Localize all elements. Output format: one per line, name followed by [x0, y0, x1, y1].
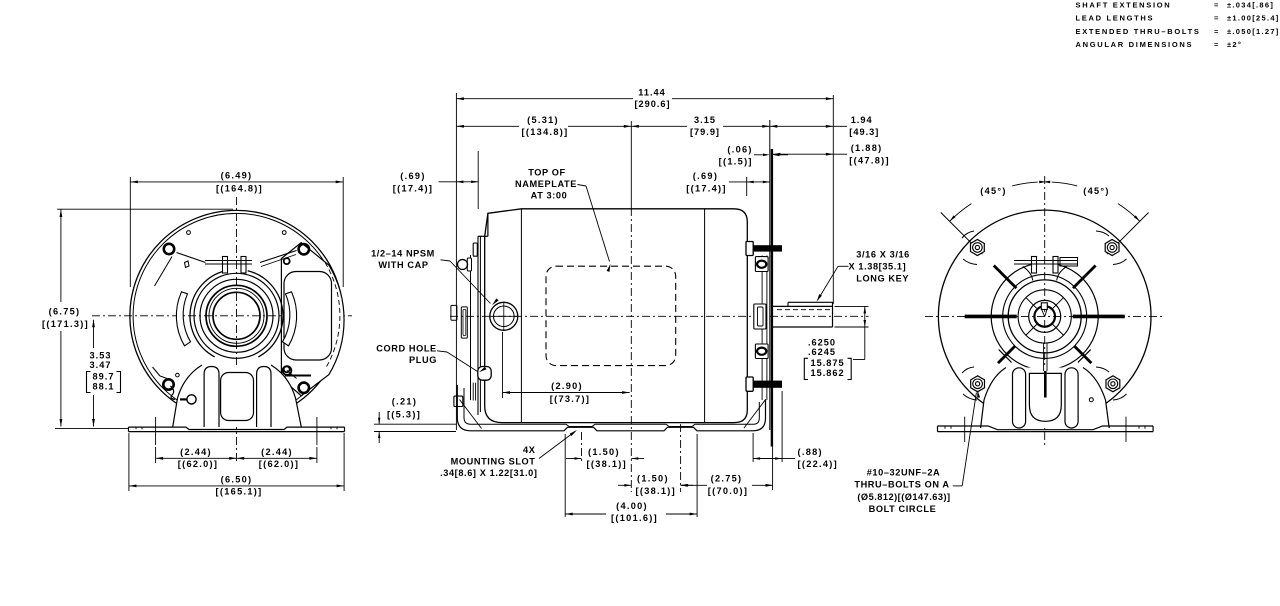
svg-text:[(62.0)]: [(62.0)] — [178, 459, 219, 469]
svg-text:(5.31): (5.31) — [527, 115, 559, 125]
svg-text:[79.9]: [79.9] — [690, 127, 720, 137]
svg-text:3.15: 3.15 — [694, 115, 716, 125]
svg-text:THRU–BOLTS ON A: THRU–BOLTS ON A — [854, 480, 949, 490]
svg-text:(6.75): (6.75) — [49, 307, 81, 317]
svg-text:.34[8.6] X 1.22[31.0]: .34[8.6] X 1.22[31.0] — [440, 468, 537, 478]
svg-text:[(1.5)]: [(1.5)] — [719, 156, 753, 166]
svg-text:(45°): (45°) — [980, 186, 1007, 196]
svg-text:(1.50): (1.50) — [588, 447, 620, 457]
svg-text:.6245: .6245 — [808, 347, 836, 357]
svg-text:X 1.38[35.1]: X 1.38[35.1] — [849, 262, 907, 272]
svg-text:(6.49): (6.49) — [221, 171, 253, 181]
svg-text:3.47: 3.47 — [90, 360, 112, 370]
svg-text:LEAD LENGTHS: LEAD LENGTHS — [1076, 14, 1155, 23]
svg-text:3.53: 3.53 — [90, 351, 112, 361]
svg-text:11.44: 11.44 — [638, 87, 665, 97]
svg-text:89.7: 89.7 — [93, 372, 115, 382]
svg-text:(1.50): (1.50) — [637, 474, 669, 484]
svg-text:(6.50): (6.50) — [221, 474, 253, 484]
svg-text:(.69): (.69) — [693, 171, 718, 181]
svg-text:(2.90): (2.90) — [551, 381, 583, 391]
svg-text:[(17.4)]: [(17.4)] — [686, 183, 727, 193]
svg-text:3/16 X 3/16: 3/16 X 3/16 — [856, 250, 910, 260]
svg-text:[(165.1)]: [(165.1)] — [216, 486, 263, 496]
svg-text:NAMEPLATE: NAMEPLATE — [515, 179, 577, 189]
svg-text:=: = — [1214, 40, 1220, 49]
svg-text:1.94: 1.94 — [851, 115, 873, 125]
svg-text:AT 3:00: AT 3:00 — [531, 191, 568, 201]
svg-text:(.69): (.69) — [400, 171, 425, 181]
svg-text:(.21): (.21) — [392, 397, 417, 407]
svg-text:CORD HOLE: CORD HOLE — [376, 343, 437, 353]
svg-text:[(38.1)]: [(38.1)] — [636, 486, 677, 496]
svg-text:±.034[.86]: ±.034[.86] — [1227, 1, 1274, 10]
svg-text:[(171.3)]: [(171.3)] — [42, 319, 89, 329]
svg-text:PLUG: PLUG — [409, 355, 437, 365]
svg-text:[(70.0)]: [(70.0)] — [708, 486, 749, 496]
svg-text:=: = — [1214, 14, 1220, 23]
svg-text:88.1: 88.1 — [93, 382, 115, 392]
svg-text:[(17.4)]: [(17.4)] — [393, 183, 434, 193]
svg-text:(2.44): (2.44) — [180, 447, 212, 457]
svg-text:(Ø5.812)[(Ø147.63)]: (Ø5.812)[(Ø147.63)] — [857, 492, 950, 502]
svg-text:1/2–14 NPSM: 1/2–14 NPSM — [371, 248, 435, 258]
svg-text:15.862: 15.862 — [811, 368, 845, 378]
svg-text:EXTENDED THRU–BOLTS: EXTENDED THRU–BOLTS — [1076, 27, 1201, 36]
svg-text:ANGULAR DIMENSIONS: ANGULAR DIMENSIONS — [1076, 40, 1194, 49]
svg-text:TOP OF: TOP OF — [528, 167, 565, 177]
svg-text:(.06): (.06) — [727, 144, 752, 154]
svg-text:[(164.8)]: [(164.8)] — [216, 184, 263, 194]
svg-text:[(134.8)]: [(134.8)] — [522, 127, 569, 137]
svg-text:[(62.0)]: [(62.0)] — [259, 459, 300, 469]
svg-text:(4.00): (4.00) — [616, 501, 648, 511]
svg-text:[(5.3)]: [(5.3)] — [387, 410, 421, 420]
svg-text:MOUNTING SLOT: MOUNTING SLOT — [451, 457, 536, 467]
svg-text:[(38.1)]: [(38.1)] — [587, 459, 628, 469]
svg-text:[(73.7)]: [(73.7)] — [550, 394, 591, 404]
svg-text:#10–32UNF–2A: #10–32UNF–2A — [867, 468, 941, 478]
svg-text:[(22.4)]: [(22.4)] — [798, 459, 839, 469]
svg-text:4X: 4X — [523, 445, 536, 455]
svg-text:±.050[1.27]: ±.050[1.27] — [1227, 27, 1280, 36]
svg-text:=: = — [1214, 1, 1220, 10]
svg-text:SHAFT EXTENSION: SHAFT EXTENSION — [1076, 1, 1172, 10]
svg-text:[(101.6)]: [(101.6)] — [611, 513, 658, 523]
svg-text:(1.88): (1.88) — [851, 143, 883, 153]
svg-text:(2.44): (2.44) — [261, 447, 293, 457]
svg-text:[49.3]: [49.3] — [849, 127, 879, 137]
svg-text:(2.75): (2.75) — [711, 474, 743, 484]
svg-text:(.88): (.88) — [798, 447, 823, 457]
svg-text:±1.00[25.4]: ±1.00[25.4] — [1227, 14, 1280, 23]
svg-text:(45°): (45°) — [1083, 186, 1110, 196]
svg-text:[290.6]: [290.6] — [634, 99, 670, 109]
svg-text:LONG KEY: LONG KEY — [856, 274, 909, 284]
svg-text:WITH CAP: WITH CAP — [378, 260, 428, 270]
svg-text:15.875: 15.875 — [811, 358, 845, 368]
svg-text:±2°: ±2° — [1227, 40, 1242, 49]
svg-text:=: = — [1214, 27, 1220, 36]
svg-text:[(47.8)]: [(47.8)] — [849, 156, 890, 166]
svg-text:BOLT CIRCLE: BOLT CIRCLE — [869, 504, 937, 514]
